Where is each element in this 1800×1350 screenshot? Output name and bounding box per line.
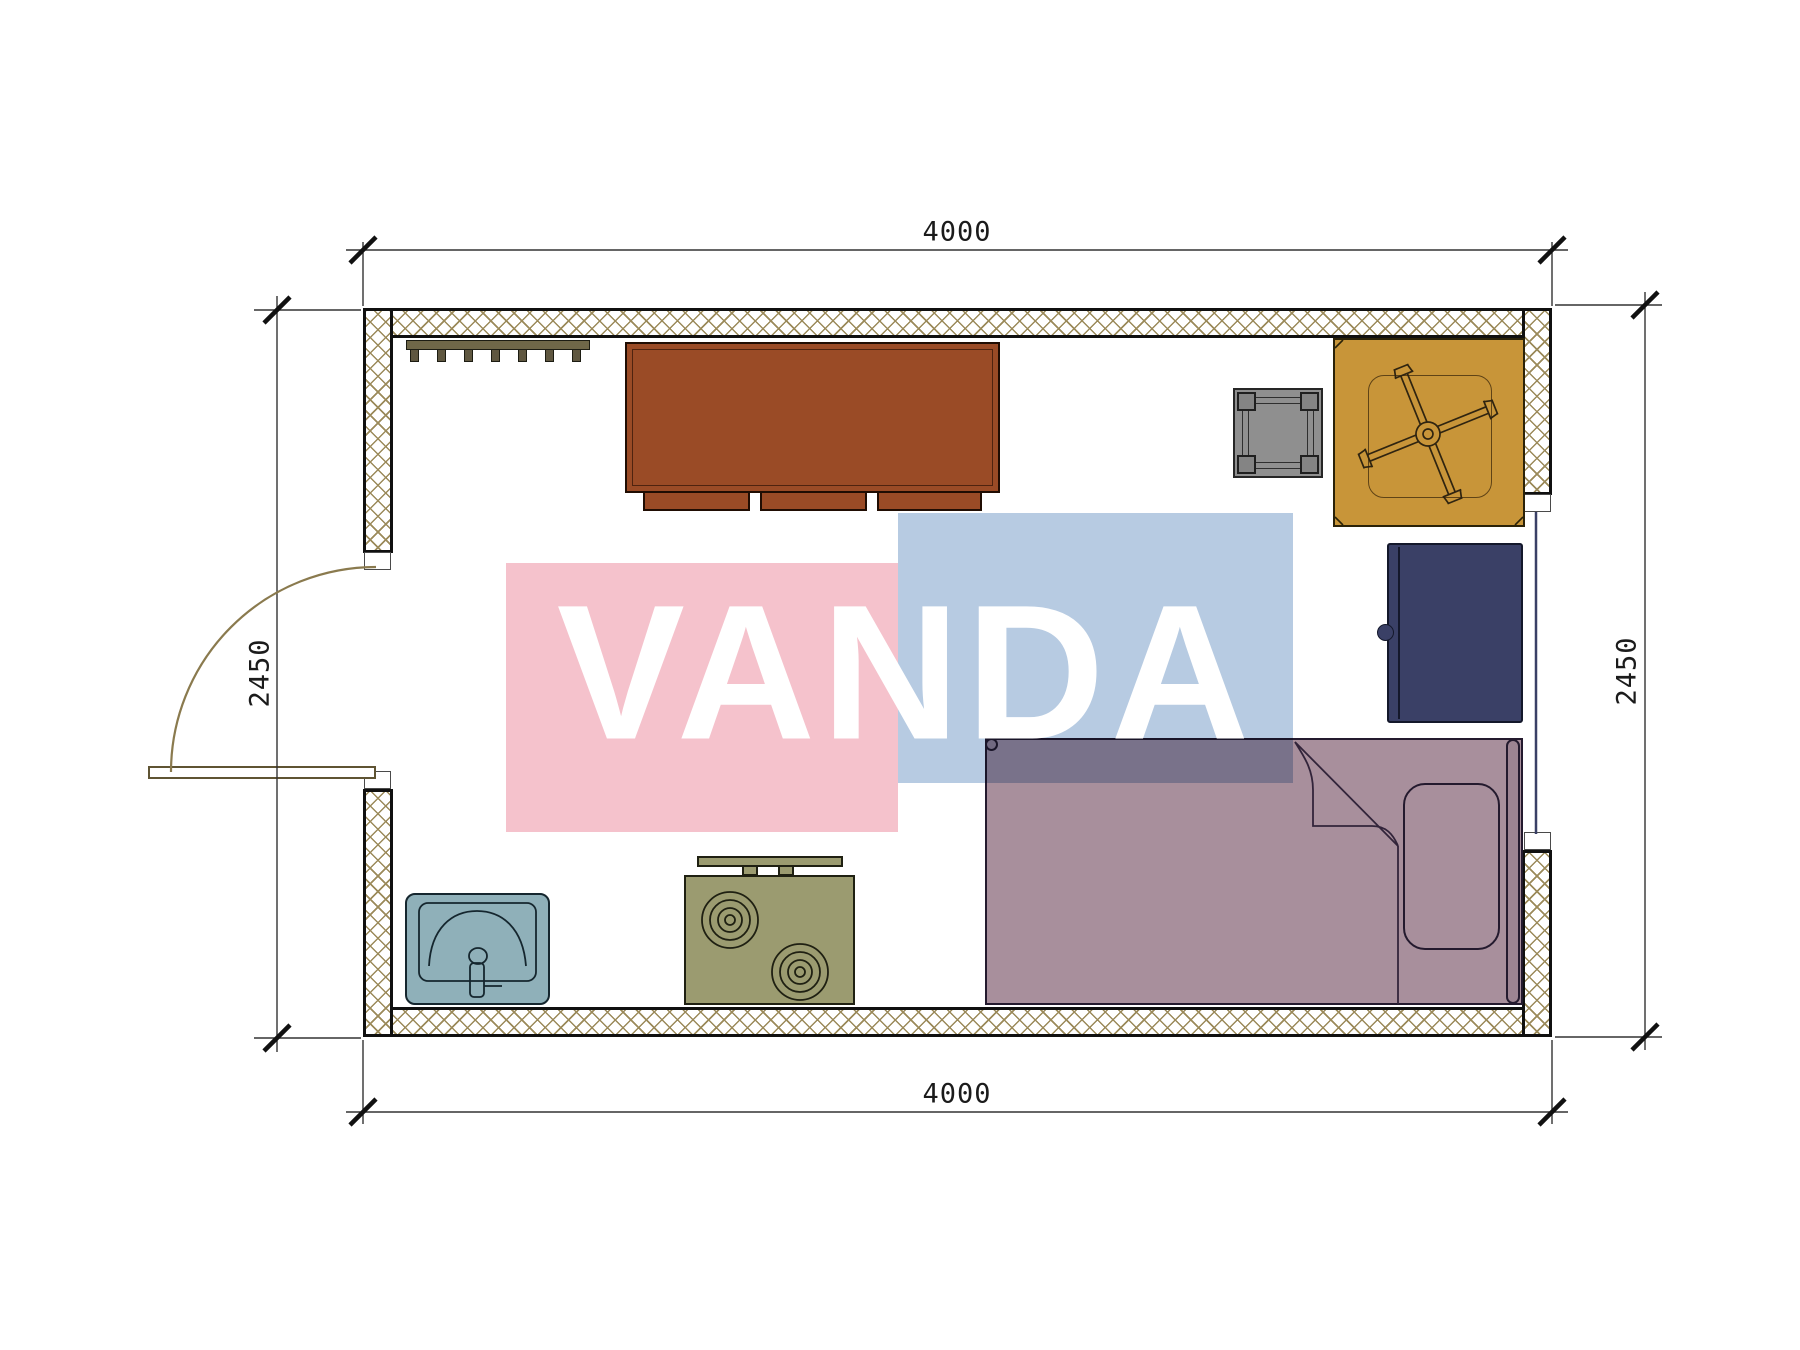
stove-icon	[684, 875, 855, 1005]
dresser-foot	[643, 491, 750, 511]
window-jamb-top	[1524, 494, 1551, 512]
wall-right-lower	[1522, 850, 1552, 1037]
dresser-icon	[625, 342, 1000, 493]
pillow-icon	[1403, 783, 1500, 950]
wall-left-upper	[363, 308, 393, 553]
wall-bottom	[363, 1007, 1552, 1037]
cabinet-knob-icon	[1377, 624, 1394, 641]
coat-hook-icon	[491, 349, 500, 362]
dresser-foot	[760, 491, 867, 511]
dresser-foot	[877, 491, 982, 511]
wall-right-upper	[1522, 308, 1552, 495]
sink-icon	[405, 893, 550, 1005]
dim-right-label: 2450	[1612, 636, 1643, 705]
stool-icon	[1233, 388, 1323, 478]
door-leaf-icon	[148, 766, 376, 779]
coat-hook-icon	[545, 349, 554, 362]
coat-hook-icon	[464, 349, 473, 362]
wall-left-lower	[363, 789, 393, 1037]
table-with-chair-base-icon	[1333, 338, 1525, 527]
watermark-text: VANDA	[557, 562, 1255, 783]
dim-left-label: 2450	[245, 638, 276, 707]
wall-top	[363, 308, 1552, 338]
coat-hook-icon	[572, 349, 581, 362]
bed-headboard	[1506, 739, 1520, 1004]
dim-top-label: 4000	[922, 217, 991, 248]
door-jamb-top	[364, 552, 391, 570]
coat-hook-icon	[518, 349, 527, 362]
floor-plan: 4000 4000 2450 2450 VANDA	[0, 0, 1800, 1350]
stove-back-panel	[697, 856, 843, 867]
window-jamb-bottom	[1524, 832, 1551, 850]
coat-hook-icon	[410, 349, 419, 362]
navy-cabinet-icon	[1387, 543, 1523, 723]
coat-hook-icon	[437, 349, 446, 362]
dim-bottom-label: 4000	[922, 1079, 991, 1110]
